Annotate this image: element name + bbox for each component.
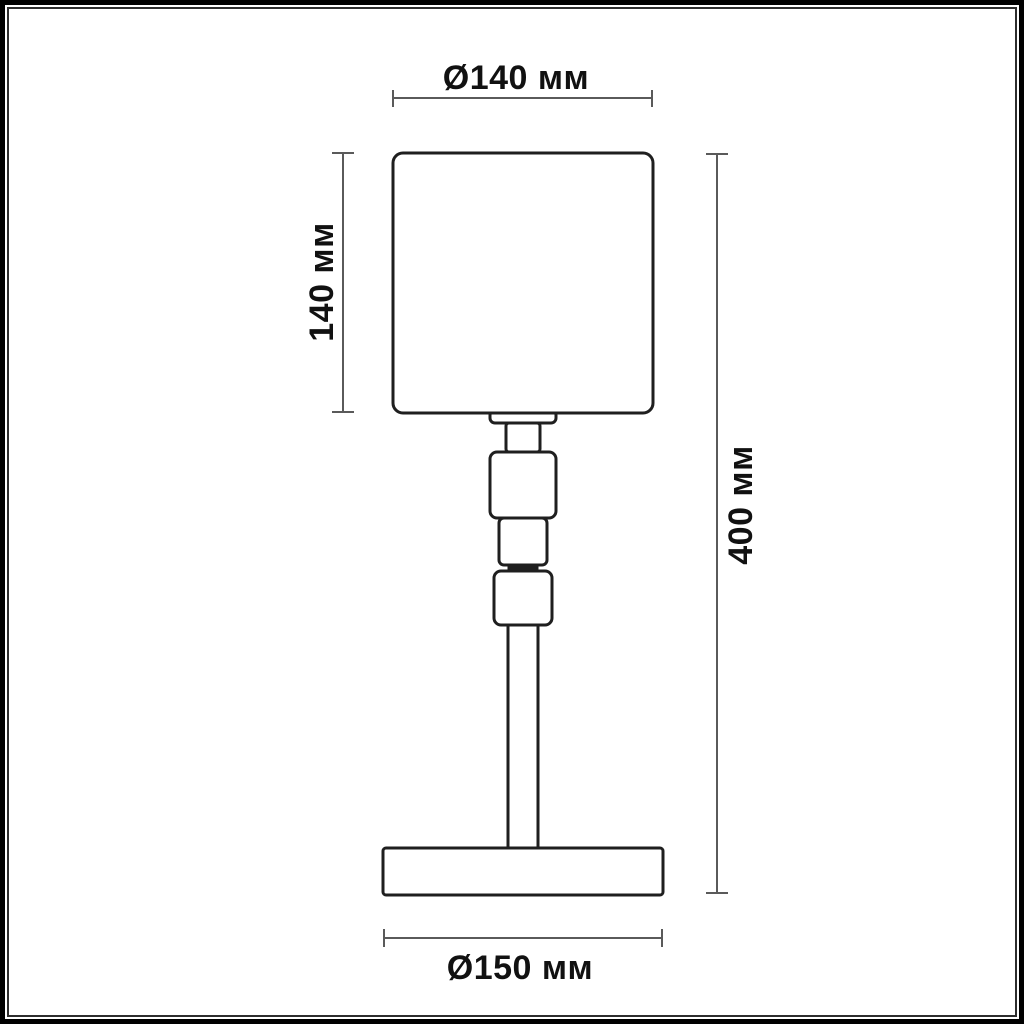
dim-label-total-height: 400 мм: [722, 445, 760, 564]
lower-joint: [494, 571, 552, 625]
lamp-outline-group: [383, 153, 663, 895]
dim-total-height: 400 мм: [706, 154, 760, 893]
neck: [506, 423, 540, 452]
dim-label-base-diameter: Ø150 мм: [447, 949, 593, 987]
lamp-technical-drawing: Ø140 мм 140 мм 400 мм Ø150 мм: [0, 0, 1024, 1024]
upper-joint: [490, 452, 556, 518]
dim-label-shade-height: 140 мм: [303, 222, 341, 341]
dim-shade-diameter: Ø140 мм: [393, 59, 652, 107]
dim-base-diameter: Ø150 мм: [384, 929, 662, 987]
base: [383, 848, 663, 895]
page: Ø140 мм 140 мм 400 мм Ø150 мм: [0, 0, 1024, 1024]
lampshade: [393, 153, 653, 413]
stem: [508, 620, 538, 851]
dim-shade-height: 140 мм: [303, 153, 354, 412]
middle-joint: [499, 518, 547, 565]
dim-label-shade-diameter: Ø140 мм: [443, 59, 589, 97]
